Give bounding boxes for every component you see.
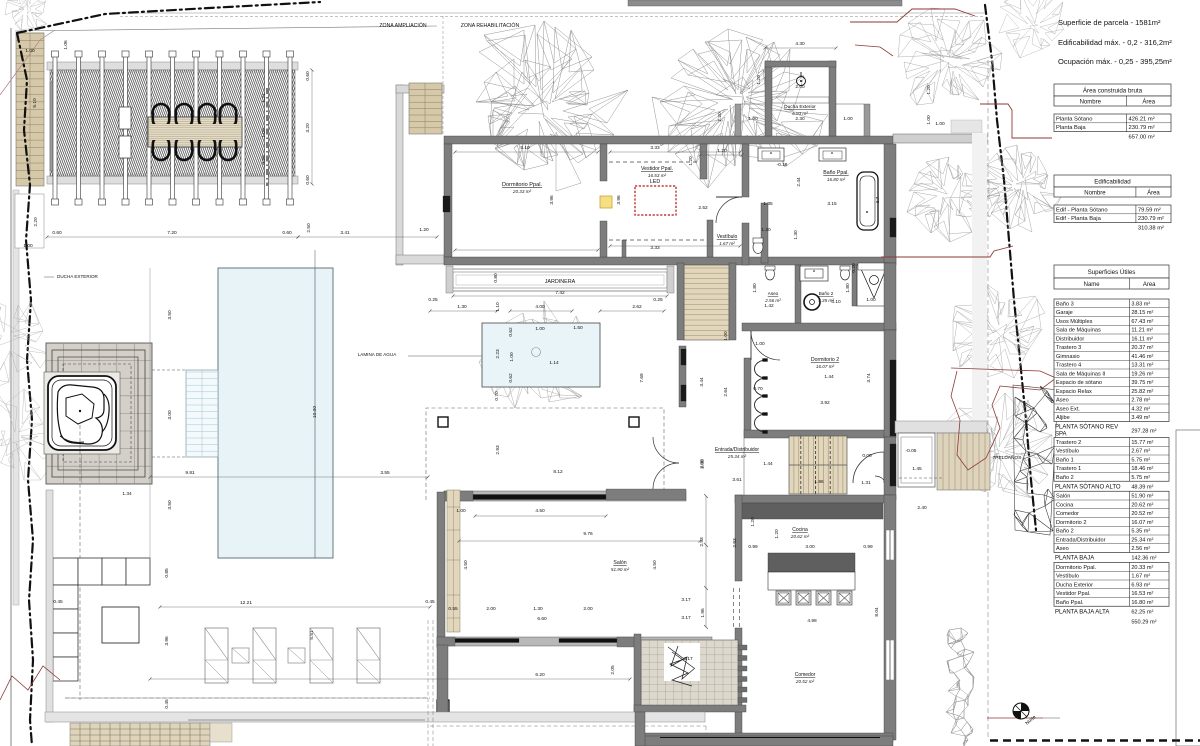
- svg-text:297.28 m²: 297.28 m²: [1131, 429, 1156, 435]
- svg-text:230.79 m²: 230.79 m²: [1129, 125, 1155, 131]
- svg-text:0.60: 0.60: [305, 71, 311, 81]
- svg-text:1.00: 1.00: [456, 508, 466, 514]
- svg-text:1.44: 1.44: [824, 374, 834, 380]
- svg-text:Baño Ppal.: Baño Ppal.: [1056, 600, 1084, 606]
- svg-text:PLANTA BAJA ALTA: PLANTA BAJA ALTA: [1055, 609, 1109, 615]
- svg-text:3.15: 3.15: [827, 201, 837, 207]
- svg-text:3.44: 3.44: [699, 377, 705, 387]
- svg-text:Superficie de parcela - 1581m²: Superficie de parcela - 1581m²: [1058, 18, 1161, 27]
- svg-text:25.34 m²: 25.34 m²: [727, 454, 747, 459]
- svg-text:3.20: 3.20: [305, 123, 311, 133]
- svg-text:Ducha Exterior: Ducha Exterior: [784, 104, 816, 110]
- svg-text:1.20: 1.20: [926, 85, 932, 95]
- svg-text:16.07 m²: 16.07 m²: [816, 364, 835, 369]
- svg-text:1.67 m²: 1.67 m²: [1131, 574, 1150, 580]
- svg-text:1.00: 1.00: [723, 331, 729, 341]
- svg-text:1.00: 1.00: [866, 297, 876, 303]
- svg-text:1.00: 1.00: [23, 243, 33, 249]
- svg-text:7.69: 7.69: [639, 373, 645, 383]
- svg-text:25.34 m²: 25.34 m²: [1131, 537, 1153, 543]
- svg-text:Salón: Salón: [1056, 494, 1070, 500]
- svg-text:0.00: 0.00: [862, 453, 872, 459]
- svg-text:426.21 m²: 426.21 m²: [1129, 116, 1155, 122]
- svg-text:16.80 m²: 16.80 m²: [827, 177, 846, 182]
- svg-text:1.45: 1.45: [912, 466, 922, 472]
- svg-text:Baño 1: Baño 1: [1056, 457, 1074, 463]
- svg-text:Name: Name: [1084, 282, 1101, 288]
- svg-text:Área: Área: [1147, 190, 1160, 197]
- svg-text:Garaje: Garaje: [1056, 310, 1073, 316]
- svg-text:Baño 2: Baño 2: [1056, 475, 1074, 481]
- svg-text:5.10: 5.10: [520, 145, 530, 151]
- svg-text:657.00 m²: 657.00 m²: [1129, 135, 1155, 141]
- svg-text:62.25 m²: 62.25 m²: [1131, 609, 1153, 615]
- svg-text:0.99: 0.99: [748, 544, 758, 550]
- svg-text:3.00: 3.00: [805, 544, 815, 550]
- svg-text:0.60: 0.60: [52, 230, 62, 236]
- svg-text:51.90 m²: 51.90 m²: [611, 567, 630, 572]
- svg-text:18.46 m²: 18.46 m²: [1131, 466, 1153, 472]
- svg-text:JARDINERA: JARDINERA: [545, 279, 576, 285]
- svg-text:20.52 m²: 20.52 m²: [795, 679, 815, 684]
- svg-text:5.10: 5.10: [32, 98, 38, 108]
- svg-text:3.74: 3.74: [866, 373, 872, 383]
- svg-text:39.75 m²: 39.75 m²: [1131, 380, 1153, 386]
- svg-text:1.20: 1.20: [419, 227, 429, 233]
- svg-text:41.46 m²: 41.46 m²: [1131, 354, 1153, 360]
- svg-text:Superficies Útiles: Superficies Útiles: [1088, 269, 1136, 276]
- svg-text:4.30: 4.30: [795, 41, 805, 47]
- svg-text:1.96: 1.96: [814, 479, 824, 485]
- svg-text:1.20: 1.20: [688, 156, 694, 166]
- svg-text:0.99: 0.99: [261, 155, 267, 165]
- svg-text:3.96: 3.96: [549, 195, 555, 205]
- svg-text:Baño 2: Baño 2: [1056, 529, 1074, 535]
- svg-text:1.10: 1.10: [495, 302, 501, 312]
- svg-text:1.67 m²: 1.67 m²: [719, 241, 735, 246]
- svg-text:3.00: 3.00: [167, 410, 173, 420]
- svg-text:3.83 m²: 3.83 m²: [1131, 301, 1150, 307]
- svg-text:13.31 m²: 13.31 m²: [1131, 363, 1153, 369]
- svg-text:2.23: 2.23: [495, 349, 501, 359]
- svg-text:LAMINA DE AGUA: LAMINA DE AGUA: [358, 352, 397, 357]
- svg-text:2.64: 2.64: [723, 387, 729, 397]
- svg-text:3.96: 3.96: [616, 195, 622, 205]
- svg-text:Dormitorio 2: Dormitorio 2: [811, 357, 839, 363]
- svg-text:1.50: 1.50: [573, 325, 583, 331]
- svg-text:4.00: 4.00: [535, 304, 545, 310]
- svg-text:Vestíbulo: Vestíbulo: [1056, 574, 1079, 580]
- svg-text:-0.05: -0.05: [906, 448, 917, 454]
- svg-text:20.37 m²: 20.37 m²: [1131, 345, 1153, 351]
- svg-text:1.00: 1.00: [748, 116, 758, 122]
- svg-text:0.45: 0.45: [53, 599, 63, 605]
- svg-text:1.44: 1.44: [763, 461, 773, 467]
- svg-text:3.50: 3.50: [167, 310, 173, 320]
- svg-text:19.26 m²: 19.26 m²: [1131, 371, 1153, 377]
- svg-text:3.10: 3.10: [831, 299, 841, 305]
- svg-text:Aseo: Aseo: [1056, 398, 1069, 404]
- svg-text:1.20: 1.20: [761, 227, 771, 233]
- svg-text:Espacio de sótano: Espacio de sótano: [1056, 380, 1102, 386]
- svg-text:3.7: 3.7: [875, 196, 881, 203]
- svg-text:3.33: 3.33: [650, 145, 660, 151]
- svg-text:Edificabilidad: Edificabilidad: [1094, 179, 1131, 186]
- svg-text:1.80: 1.80: [752, 283, 758, 293]
- svg-text:12.21: 12.21: [240, 600, 252, 606]
- svg-text:16.80 m²: 16.80 m²: [1131, 600, 1153, 606]
- svg-text:2.62: 2.62: [632, 304, 642, 310]
- svg-text:Sala de Máquinas II: Sala de Máquinas II: [1056, 371, 1106, 377]
- svg-text:1.35: 1.35: [763, 201, 773, 207]
- svg-text:Baño 2: Baño 2: [819, 291, 834, 296]
- svg-text:0.70: 0.70: [753, 386, 763, 392]
- svg-text:4.32 m²: 4.32 m²: [1131, 406, 1150, 412]
- svg-text:1.14: 1.14: [549, 360, 559, 366]
- svg-text:1.30: 1.30: [533, 606, 543, 612]
- svg-text:Trastero 2: Trastero 2: [1056, 440, 1081, 446]
- svg-text:16.11 m²: 16.11 m²: [1131, 336, 1153, 342]
- svg-text:5.51: 5.51: [309, 630, 315, 640]
- svg-text:0.45: 0.45: [425, 599, 435, 605]
- svg-text:Comedor: Comedor: [795, 672, 816, 678]
- svg-text:Entrada/Distribuidor: Entrada/Distribuidor: [715, 447, 760, 453]
- svg-text:1.20: 1.20: [717, 148, 727, 154]
- svg-text:Dormitorio Ppal.: Dormitorio Ppal.: [1056, 565, 1097, 571]
- svg-text:3.96: 3.96: [164, 636, 170, 646]
- svg-text:Vestidor Ppal.: Vestidor Ppal.: [641, 166, 673, 172]
- svg-text:7PELDAÑOS: 7PELDAÑOS: [993, 454, 1022, 461]
- svg-text:8.04: 8.04: [874, 607, 880, 617]
- svg-text:0.62: 0.62: [508, 373, 514, 383]
- svg-text:2.00: 2.00: [583, 606, 593, 612]
- svg-text:1.00: 1.00: [755, 341, 765, 347]
- svg-text:1.20: 1.20: [774, 529, 780, 539]
- svg-text:9.76: 9.76: [583, 531, 593, 537]
- svg-text:9.81: 9.81: [185, 470, 195, 476]
- svg-text:2.93: 2.93: [699, 537, 705, 547]
- svg-text:1.00: 1.00: [935, 121, 945, 127]
- svg-text:1.00: 1.00: [843, 116, 853, 122]
- svg-text:Área: Área: [1142, 99, 1155, 106]
- svg-text:1.30: 1.30: [793, 230, 799, 240]
- svg-text:0.80: 0.80: [493, 273, 499, 283]
- svg-text:2.50: 2.50: [306, 223, 312, 233]
- svg-text:Cocina: Cocina: [1056, 502, 1074, 508]
- svg-text:2.20: 2.20: [33, 217, 39, 227]
- svg-text:28.15 m²: 28.15 m²: [1131, 310, 1153, 316]
- svg-text:25.82 m²: 25.82 m²: [1131, 389, 1153, 395]
- svg-text:2.67 m²: 2.67 m²: [1131, 449, 1150, 455]
- svg-text:3.17: 3.17: [681, 597, 691, 603]
- svg-text:11.21 m²: 11.21 m²: [1131, 328, 1153, 334]
- svg-text:ZONA REHABILITACIÓN: ZONA REHABILITACIÓN: [461, 22, 520, 29]
- svg-text:Vestíbulo: Vestíbulo: [1056, 449, 1079, 455]
- svg-text:6.60: 6.60: [537, 616, 547, 622]
- svg-text:1.00: 1.00: [535, 326, 545, 332]
- svg-text:20.52 m²: 20.52 m²: [1131, 511, 1153, 517]
- svg-text:1.42: 1.42: [764, 303, 774, 309]
- svg-text:3.33: 3.33: [650, 245, 660, 251]
- svg-text:16.53 m²: 16.53 m²: [648, 173, 667, 178]
- svg-text:Cocina: Cocina: [792, 527, 808, 533]
- svg-text:20.62 m²: 20.62 m²: [790, 534, 810, 539]
- svg-text:Ocupación máx. - 0,25 - 395,25: Ocupación máx. - 0,25 - 395,25m²: [1058, 57, 1172, 66]
- svg-text:PLANTA BAJA: PLANTA BAJA: [1055, 556, 1094, 562]
- svg-text:16.07 m²: 16.07 m²: [1131, 520, 1153, 526]
- svg-text:DUCHA EXTERIOR: DUCHA EXTERIOR: [57, 274, 99, 279]
- svg-text:Nombre: Nombre: [1084, 191, 1106, 197]
- svg-text:0.25: 0.25: [428, 297, 438, 303]
- svg-text:2.44: 2.44: [796, 177, 802, 187]
- svg-text:6.93 m²: 6.93 m²: [792, 111, 808, 116]
- svg-text:PLANTA SÓTANO ALTO: PLANTA SÓTANO ALTO: [1055, 483, 1121, 490]
- svg-text:5.35 m²: 5.35 m²: [1131, 529, 1150, 535]
- svg-text:1.80: 1.80: [845, 283, 851, 293]
- svg-text:0.20: 0.20: [851, 263, 857, 273]
- svg-text:6.20: 6.20: [535, 672, 545, 678]
- svg-text:Edif - Planta Baja: Edif - Planta Baja: [1056, 216, 1102, 222]
- svg-text:1.20: 1.20: [756, 75, 762, 85]
- svg-text:1.34: 1.34: [122, 491, 132, 497]
- svg-text:2.52: 2.52: [698, 205, 708, 211]
- svg-text:ZONA AMPLIACIÓN: ZONA AMPLIACIÓN: [379, 22, 427, 29]
- svg-text:5.75 m²: 5.75 m²: [1131, 457, 1150, 463]
- svg-text:Edificabilidad máx. - 0,2 - 31: Edificabilidad máx. - 0,2 - 316,2m²: [1058, 38, 1172, 47]
- svg-text:4.50: 4.50: [463, 560, 469, 570]
- svg-text:1.00: 1.00: [509, 352, 515, 362]
- svg-text:2.56 m²: 2.56 m²: [764, 298, 781, 303]
- svg-text:1.06: 1.06: [63, 40, 69, 50]
- svg-text:3.49 m²: 3.49 m²: [1131, 415, 1150, 421]
- svg-text:Trastero 4: Trastero 4: [1056, 363, 1081, 369]
- svg-text:Baño Ppal.: Baño Ppal.: [823, 170, 848, 176]
- svg-text:67.43 m²: 67.43 m²: [1131, 319, 1153, 325]
- svg-text:1.20: 1.20: [750, 517, 756, 527]
- svg-text:3.61: 3.61: [732, 477, 742, 483]
- svg-text:20.33 m²: 20.33 m²: [512, 189, 532, 194]
- svg-text:Planta Sótano: Planta Sótano: [1056, 116, 1092, 122]
- svg-text:310.38 m²: 310.38 m²: [1138, 226, 1164, 232]
- svg-text:1.31: 1.31: [861, 480, 871, 486]
- svg-text:Sala de Máquinas: Sala de Máquinas: [1056, 328, 1101, 334]
- svg-text:0.70: 0.70: [494, 391, 500, 401]
- svg-text:Vestidor Ppal.: Vestidor Ppal.: [1056, 591, 1091, 597]
- svg-text:Baño 3: Baño 3: [1056, 301, 1074, 307]
- svg-text:1.00: 1.00: [926, 115, 932, 125]
- svg-text:79.59 m²: 79.59 m²: [1138, 207, 1161, 213]
- svg-text:2.05: 2.05: [610, 665, 616, 675]
- svg-text:2.78 m²: 2.78 m²: [1131, 398, 1150, 404]
- svg-text:2.30: 2.30: [795, 116, 805, 122]
- svg-text:0.62: 0.62: [508, 327, 514, 337]
- svg-text:Dormitorio 2: Dormitorio 2: [1056, 520, 1086, 526]
- svg-text:48.39 m²: 48.39 m²: [1131, 484, 1153, 490]
- svg-text:-0.18: -0.18: [777, 162, 788, 168]
- svg-text:15.77 m²: 15.77 m²: [1131, 440, 1153, 446]
- svg-text:Comedor: Comedor: [1056, 511, 1079, 517]
- svg-text:142.36 m²: 142.36 m²: [1131, 556, 1156, 562]
- svg-text:3.92: 3.92: [820, 400, 830, 406]
- svg-text:2.56 m²: 2.56 m²: [1131, 546, 1150, 552]
- svg-text:2.93: 2.93: [495, 445, 501, 455]
- svg-text:0.45: 0.45: [164, 699, 170, 709]
- svg-text:51.90 m²: 51.90 m²: [1131, 494, 1153, 500]
- svg-text:0.99: 0.99: [863, 544, 873, 550]
- svg-text:8.12: 8.12: [553, 469, 563, 475]
- svg-text:1.00: 1.00: [25, 48, 35, 54]
- svg-text:Trastero 1: Trastero 1: [1056, 466, 1081, 472]
- svg-text:20.62 m²: 20.62 m²: [1131, 502, 1153, 508]
- svg-text:Trastero 3: Trastero 3: [1056, 345, 1081, 351]
- svg-text:Aseo: Aseo: [1056, 546, 1069, 552]
- svg-text:3.55: 3.55: [380, 470, 390, 476]
- svg-text:3.41: 3.41: [340, 230, 350, 236]
- svg-text:Aljibe: Aljibe: [1056, 415, 1070, 421]
- svg-text:3.17: 3.17: [681, 615, 691, 621]
- svg-text:Usos Múltiples: Usos Múltiples: [1056, 319, 1093, 325]
- svg-text:0.55: 0.55: [448, 606, 458, 612]
- svg-text:PLANTA SÓTANO REV: PLANTA SÓTANO REV: [1055, 424, 1118, 431]
- svg-text:20.33 m²: 20.33 m²: [1131, 565, 1153, 571]
- svg-text:4.50: 4.50: [535, 508, 545, 514]
- svg-text:Salón: Salón: [613, 560, 626, 566]
- svg-text:3.17: 3.17: [683, 656, 693, 662]
- svg-text:16.53 m²: 16.53 m²: [1131, 591, 1153, 597]
- svg-text:550.29 m²: 550.29 m²: [1131, 619, 1156, 625]
- svg-text:1.96: 1.96: [700, 608, 706, 618]
- svg-text:2.00: 2.00: [795, 84, 805, 90]
- svg-text:230.79 m²: 230.79 m²: [1138, 216, 1164, 222]
- svg-text:Distribuidor: Distribuidor: [1056, 336, 1084, 342]
- svg-text:Vestíbulo: Vestíbulo: [717, 234, 738, 240]
- svg-text:Espacio Relax: Espacio Relax: [1056, 389, 1092, 395]
- svg-text:Entrada/Distribuidor: Entrada/Distribuidor: [1056, 537, 1106, 543]
- svg-text:7.42: 7.42: [555, 290, 565, 296]
- svg-text:4.98: 4.98: [807, 618, 817, 624]
- svg-text:Nombre: Nombre: [1080, 100, 1102, 106]
- svg-text:1.30: 1.30: [457, 304, 467, 310]
- svg-text:Dormitorio Ppal.: Dormitorio Ppal.: [502, 182, 543, 188]
- svg-text:2.00: 2.00: [699, 459, 705, 469]
- svg-text:3.50: 3.50: [167, 500, 173, 510]
- svg-text:2.40: 2.40: [917, 505, 927, 511]
- svg-text:2.20: 2.20: [717, 112, 723, 122]
- svg-text:0.85: 0.85: [164, 568, 170, 578]
- svg-text:Gimnasio: Gimnasio: [1056, 354, 1080, 360]
- svg-text:7.20: 7.20: [167, 230, 177, 236]
- svg-text:1.21: 1.21: [261, 93, 267, 103]
- svg-text:0.25: 0.25: [653, 297, 663, 303]
- svg-text:2.93: 2.93: [732, 538, 738, 548]
- svg-text:10.00: 10.00: [312, 406, 318, 418]
- svg-text:LED: LED: [650, 179, 661, 185]
- svg-text:2.00: 2.00: [486, 606, 496, 612]
- svg-text:Planta Baja: Planta Baja: [1056, 125, 1086, 131]
- svg-text:0.60: 0.60: [305, 175, 311, 185]
- svg-text:5.75 m²: 5.75 m²: [1131, 475, 1150, 481]
- svg-text:4.50: 4.50: [652, 560, 658, 570]
- svg-text:Ducha Exterior: Ducha Exterior: [1056, 582, 1093, 588]
- svg-text:Edif - Planta Sótano: Edif - Planta Sótano: [1056, 207, 1108, 213]
- svg-text:Aseo: Aseo: [768, 291, 779, 296]
- svg-text:Área construida bruta: Área construida bruta: [1083, 88, 1143, 95]
- svg-text:6.93 m²: 6.93 m²: [1131, 582, 1150, 588]
- svg-text:0.60: 0.60: [282, 230, 292, 236]
- svg-text:Aseo Ext.: Aseo Ext.: [1056, 406, 1080, 412]
- svg-text:1.00: 1.00: [261, 128, 267, 138]
- svg-text:SPA: SPA: [1055, 432, 1067, 438]
- svg-text:Area: Area: [1143, 282, 1156, 288]
